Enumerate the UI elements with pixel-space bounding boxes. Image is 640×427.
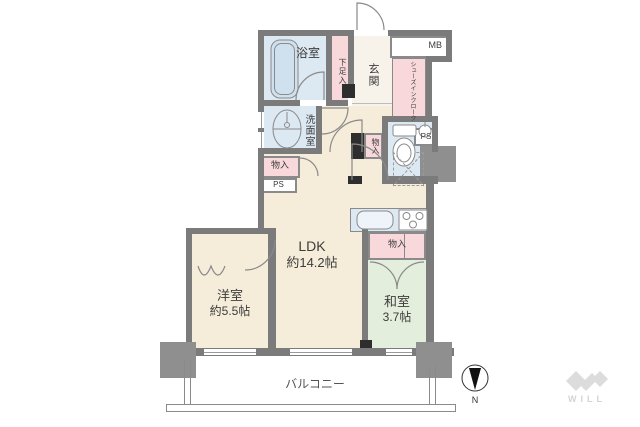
label-ps-right: PS: [414, 132, 438, 142]
label-yoshitsu-name: 洋室: [192, 288, 268, 304]
label-storage-kitchen: 物入: [368, 239, 426, 250]
wall-segment: [426, 182, 434, 352]
label-washitsu: 和室 3.7帖: [368, 294, 426, 324]
entrance-step-line: [352, 103, 392, 104]
label-storage-left: 物入: [260, 160, 300, 171]
compass-icon: N: [462, 365, 488, 405]
wall-segment: [186, 228, 276, 234]
compass-north-label: N: [472, 395, 479, 405]
wall-segment: [426, 56, 432, 122]
label-ldk: LDK 約14.2帖: [272, 238, 352, 270]
label-washitsu-name: 和室: [368, 294, 426, 310]
window: [290, 349, 352, 355]
floor-plan: N 浴室 下足入 玄関 MB シューズインクローク 洗面室 物入 PS 物入 P…: [0, 0, 640, 427]
label-yoshitsu-size: 約5.5帖: [192, 304, 268, 318]
wall-segment: [326, 100, 348, 106]
label-meter-box: MB: [392, 40, 442, 51]
label-entrance: 玄関: [363, 52, 379, 98]
wall-stub: [351, 133, 364, 159]
balcony-rail: [166, 404, 456, 412]
wall-stub: [348, 176, 362, 184]
wall-segment: [264, 100, 300, 106]
will-logo-text: WILL: [556, 394, 618, 405]
label-shoes-in-cloak: シューズインクローク: [402, 61, 415, 121]
window: [258, 132, 264, 148]
wall-segment: [382, 176, 438, 184]
label-balcony: バルコニー: [250, 377, 380, 391]
label-yoshitsu: 洋室 約5.5帖: [192, 288, 268, 318]
wall-segment: [258, 30, 354, 36]
label-washitsu-size: 3.7帖: [368, 310, 426, 324]
wall-segment: [348, 30, 354, 88]
window: [386, 349, 412, 355]
wall-segment: [382, 116, 388, 182]
wall-stub: [360, 340, 372, 348]
label-ldk-size: 約14.2帖: [272, 255, 352, 271]
balcony-support-right: [429, 366, 436, 406]
label-shoe-box: 下足入: [333, 42, 347, 100]
label-ps-left: PS: [260, 180, 297, 190]
label-ldk-name: LDK: [272, 238, 352, 255]
window: [204, 349, 256, 355]
wall-segment: [388, 30, 450, 36]
label-washroom: 洗面室: [300, 108, 314, 152]
washitsu-closet-divider: [368, 258, 426, 260]
label-bathroom: 浴室: [288, 46, 328, 60]
label-storage-hall: 物入: [367, 135, 380, 157]
window: [258, 112, 264, 128]
wall-segment: [316, 106, 322, 154]
will-logo-icon: [566, 371, 608, 391]
balcony-support-left: [184, 360, 191, 406]
wall-segment: [326, 30, 332, 106]
